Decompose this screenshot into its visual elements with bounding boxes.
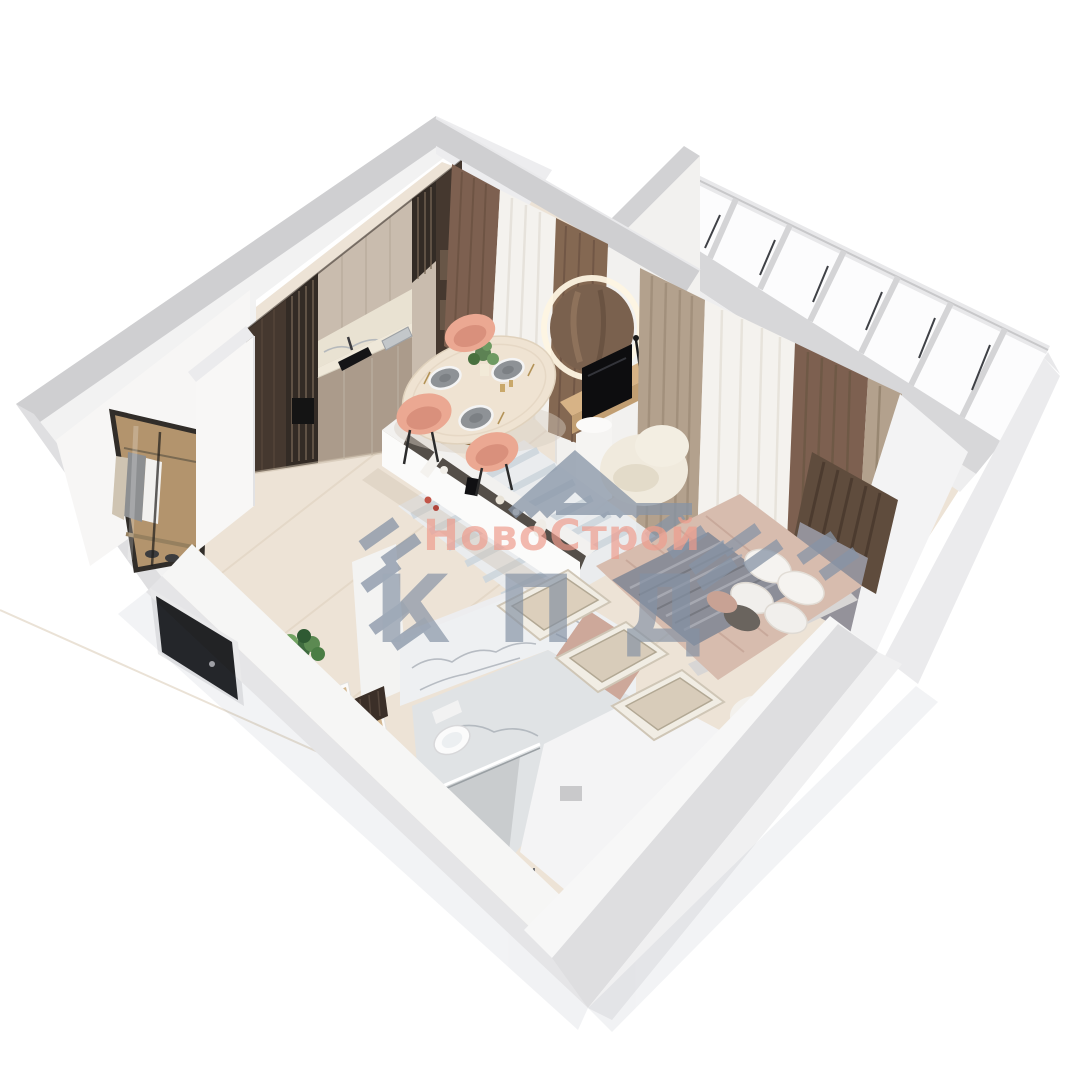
watermark-abbr: КПД: [374, 556, 751, 665]
deck-niche: [560, 786, 582, 801]
oven: [292, 398, 314, 424]
floor-plan-render: НовоСтрой КПД: [0, 0, 1080, 1080]
floor-plan-screenshot: НовоСтрой КПД: [0, 0, 1080, 1080]
watermark-brand: НовоСтрой: [423, 511, 701, 561]
red-decor: [425, 497, 432, 504]
vase: [480, 364, 489, 376]
armchair-back: [635, 425, 689, 467]
